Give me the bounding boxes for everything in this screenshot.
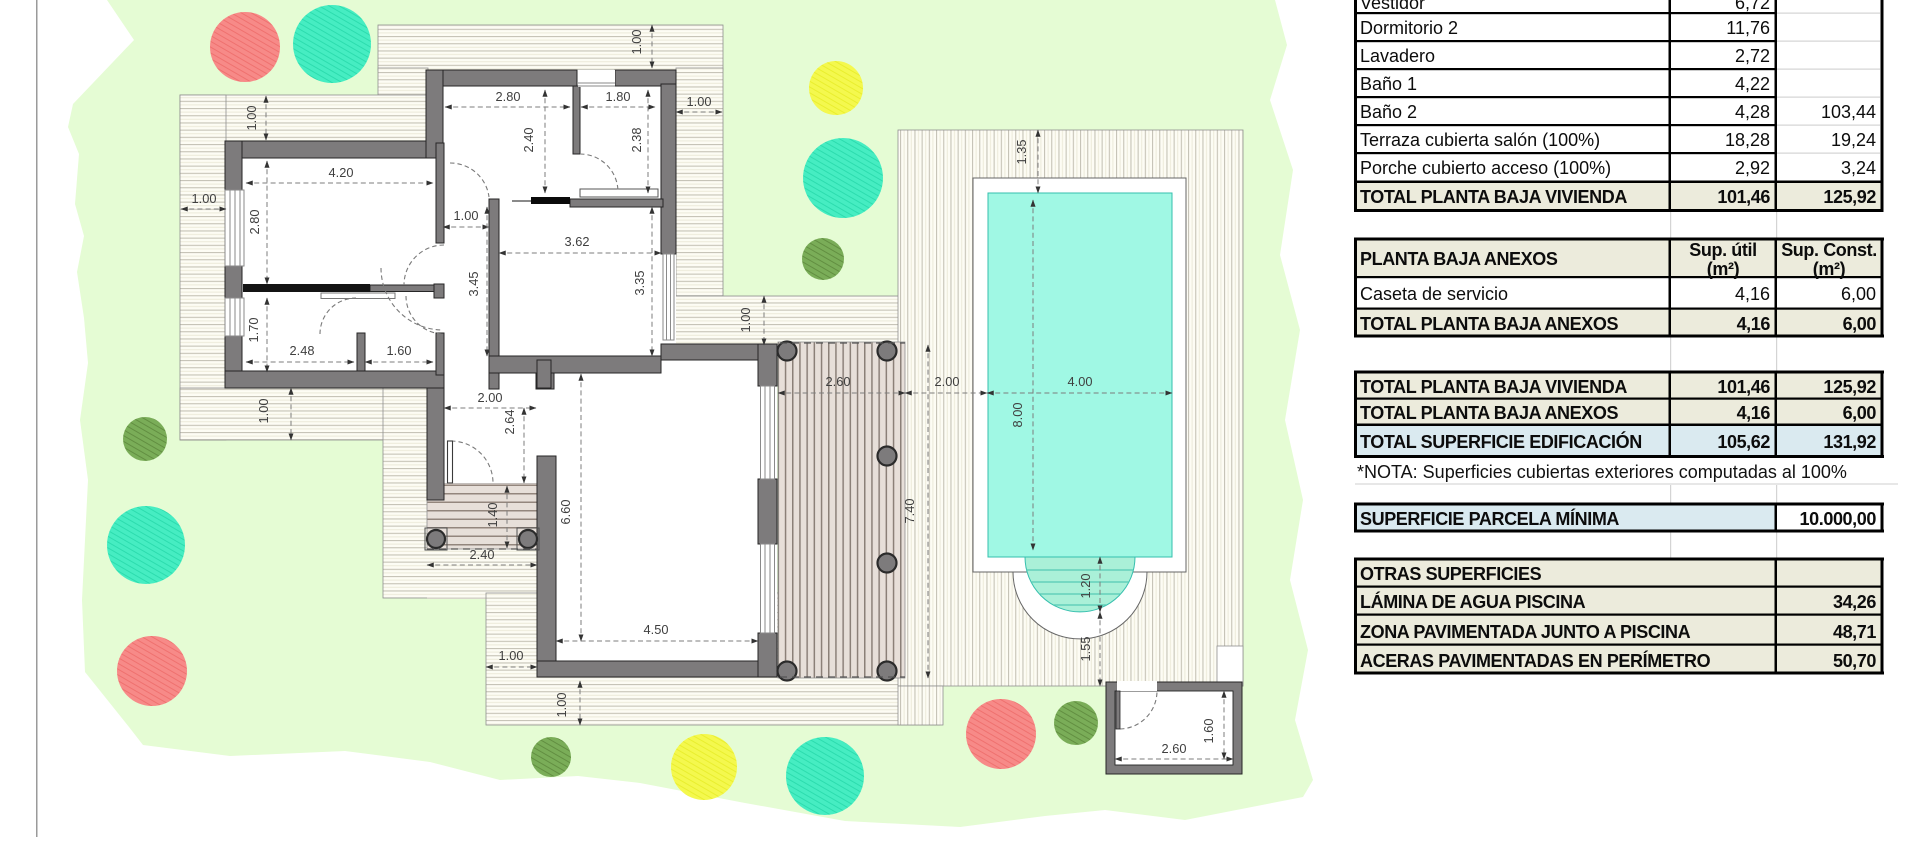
svg-text:1.35: 1.35 [1014, 140, 1029, 165]
svg-text:TOTAL PLANTA BAJA VIVIENDA: TOTAL PLANTA BAJA VIVIENDA [1360, 187, 1627, 207]
svg-text:Caseta de servicio: Caseta de servicio [1360, 284, 1508, 304]
svg-text:1.00: 1.00 [244, 106, 259, 131]
svg-text:1.60: 1.60 [1201, 719, 1216, 744]
svg-text:TOTAL SUPERFICIE EDIFICACIÓN: TOTAL SUPERFICIE EDIFICACIÓN [1360, 431, 1642, 452]
svg-text:4,22: 4,22 [1735, 74, 1770, 94]
svg-text:1.55: 1.55 [1078, 637, 1093, 662]
svg-text:1.00: 1.00 [499, 648, 524, 663]
svg-text:103,44: 103,44 [1821, 102, 1876, 122]
svg-text:TOTAL PLANTA BAJA VIVIENDA: TOTAL PLANTA BAJA VIVIENDA [1360, 377, 1627, 397]
svg-text:4.50: 4.50 [644, 622, 669, 637]
svg-text:1.00: 1.00 [192, 191, 217, 206]
svg-text:*NOTA: Superficies cubiertas e: *NOTA: Superficies cubiertas exteriores … [1357, 462, 1847, 482]
svg-text:ZONA PAVIMENTADA JUNTO A PISCI: ZONA PAVIMENTADA JUNTO A PISCINA [1360, 622, 1691, 642]
svg-text:Vestidor: Vestidor [1360, 0, 1425, 13]
svg-text:Terraza cubierta salón (100%): Terraza cubierta salón (100%) [1360, 130, 1600, 150]
svg-text:2.00: 2.00 [478, 390, 503, 405]
svg-text:2,72: 2,72 [1735, 46, 1770, 66]
svg-text:19,24: 19,24 [1831, 130, 1876, 150]
svg-text:1.20: 1.20 [1078, 574, 1093, 599]
svg-text:4,16: 4,16 [1737, 403, 1771, 423]
svg-text:4,16: 4,16 [1737, 314, 1771, 334]
svg-text:TOTAL PLANTA BAJA ANEXOS: TOTAL PLANTA BAJA ANEXOS [1360, 314, 1618, 334]
svg-text:Sup. útil: Sup. útil [1689, 240, 1756, 260]
svg-text:Dormitorio 2: Dormitorio 2 [1360, 18, 1458, 38]
svg-text:2.38: 2.38 [629, 128, 644, 153]
svg-text:1.00: 1.00 [454, 208, 479, 223]
svg-text:4,16: 4,16 [1735, 284, 1770, 304]
svg-text:1.80: 1.80 [606, 89, 631, 104]
svg-text:18,28: 18,28 [1725, 130, 1770, 150]
svg-text:2,92: 2,92 [1735, 158, 1770, 178]
svg-text:8.00: 8.00 [1010, 403, 1025, 428]
svg-text:6.60: 6.60 [558, 500, 573, 525]
svg-text:3.35: 3.35 [632, 271, 647, 296]
svg-text:SUPERFICIE PARCELA MÍNIMA: SUPERFICIE PARCELA MÍNIMA [1360, 508, 1619, 529]
svg-text:ACERAS PAVIMENTADAS EN PERÍMET: ACERAS PAVIMENTADAS EN PERÍMETRO [1360, 650, 1711, 671]
svg-text:(m²): (m²) [1707, 259, 1740, 279]
svg-text:2.64: 2.64 [502, 410, 517, 435]
svg-text:6,72: 6,72 [1735, 0, 1770, 13]
svg-text:6,00: 6,00 [1843, 314, 1877, 334]
svg-text:TOTAL PLANTA BAJA ANEXOS: TOTAL PLANTA BAJA ANEXOS [1360, 403, 1618, 423]
svg-text:7.40: 7.40 [902, 499, 917, 524]
svg-text:1.00: 1.00 [687, 94, 712, 109]
svg-text:Sup. Const.: Sup. Const. [1781, 240, 1877, 260]
svg-text:131,92: 131,92 [1823, 432, 1876, 452]
svg-text:4.00: 4.00 [1068, 374, 1093, 389]
svg-text:3.62: 3.62 [565, 234, 590, 249]
svg-text:1.60: 1.60 [387, 343, 412, 358]
svg-text:10.000,00: 10.000,00 [1800, 509, 1877, 529]
svg-text:PLANTA BAJA ANEXOS: PLANTA BAJA ANEXOS [1360, 249, 1558, 269]
svg-text:Lavadero: Lavadero [1360, 46, 1435, 66]
svg-text:3,24: 3,24 [1841, 158, 1876, 178]
svg-text:1.00: 1.00 [256, 399, 271, 424]
svg-text:2.60: 2.60 [826, 374, 851, 389]
svg-text:LÁMINA DE AGUA PISCINA: LÁMINA DE AGUA PISCINA [1360, 591, 1586, 612]
svg-text:1.00: 1.00 [738, 308, 753, 333]
svg-text:11,76: 11,76 [1726, 18, 1770, 38]
svg-text:34,26: 34,26 [1833, 592, 1876, 612]
svg-text:4,28: 4,28 [1735, 102, 1770, 122]
svg-text:1.00: 1.00 [554, 693, 569, 718]
svg-text:3.45: 3.45 [466, 272, 481, 297]
svg-text:2.00: 2.00 [935, 374, 960, 389]
svg-text:1.00: 1.00 [629, 30, 644, 55]
svg-text:4.20: 4.20 [329, 165, 354, 180]
svg-text:2.80: 2.80 [496, 89, 521, 104]
svg-text:Porche cubierto acceso (100%): Porche cubierto acceso (100%) [1360, 158, 1611, 178]
svg-text:101,46: 101,46 [1717, 187, 1770, 207]
svg-text:OTRAS SUPERFICIES: OTRAS SUPERFICIES [1360, 564, 1542, 584]
svg-text:101,46: 101,46 [1717, 377, 1770, 397]
svg-text:6,00: 6,00 [1841, 284, 1876, 304]
svg-text:(m²): (m²) [1813, 259, 1846, 279]
svg-text:125,92: 125,92 [1823, 377, 1876, 397]
svg-text:2.48: 2.48 [290, 343, 315, 358]
svg-text:2.40: 2.40 [470, 547, 495, 562]
svg-text:1.70: 1.70 [246, 318, 261, 343]
svg-text:2.80: 2.80 [247, 210, 262, 235]
svg-text:Baño 1: Baño 1 [1360, 74, 1417, 94]
svg-text:105,62: 105,62 [1717, 432, 1770, 452]
svg-text:2.40: 2.40 [521, 128, 536, 153]
svg-text:50,70: 50,70 [1833, 651, 1876, 671]
svg-text:48,71: 48,71 [1833, 622, 1876, 642]
svg-text:2.60: 2.60 [1162, 741, 1187, 756]
svg-text:1.40: 1.40 [485, 503, 500, 528]
svg-text:Baño 2: Baño 2 [1360, 102, 1417, 122]
svg-text:6,00: 6,00 [1843, 403, 1877, 423]
svg-text:125,92: 125,92 [1823, 187, 1876, 207]
